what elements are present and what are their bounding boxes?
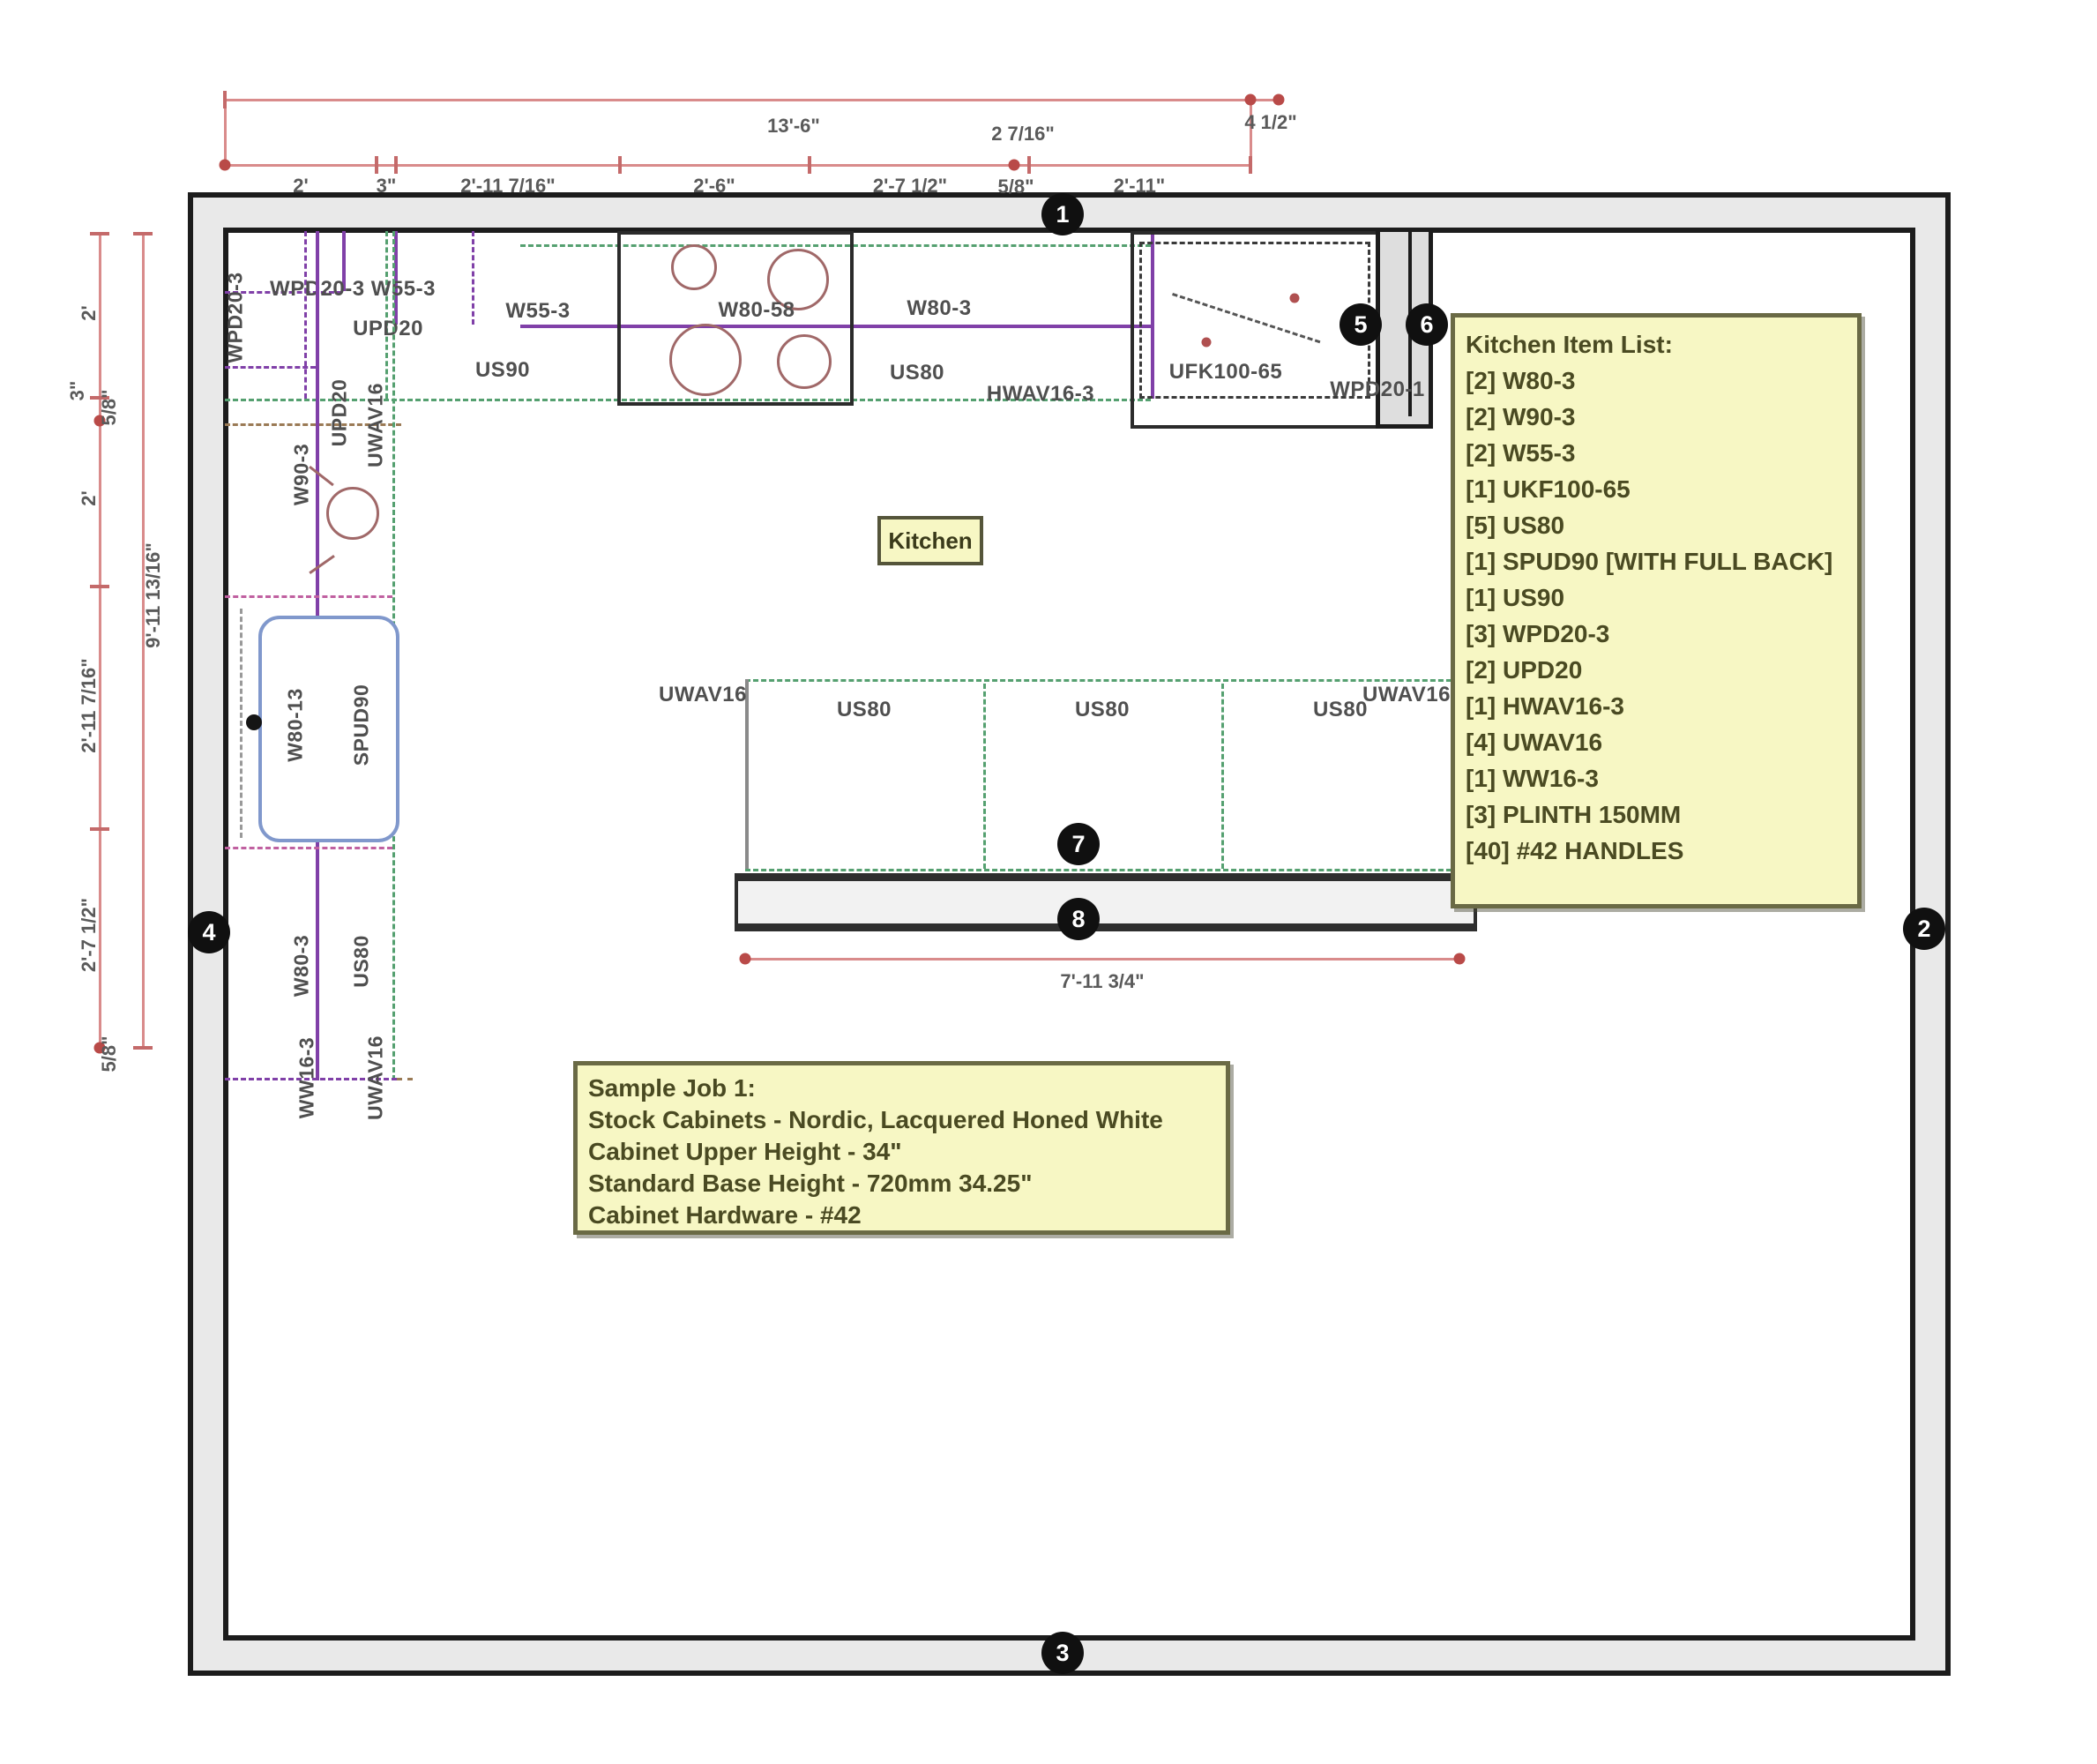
cabinet-label: UWAV16 [1362, 683, 1451, 707]
dim-label: 2' [78, 490, 101, 505]
kitchen-item-list-note[interactable]: Kitchen Item List: [2] W80-3 [2] W90-3 [… [1451, 313, 1862, 908]
cabinet-label: US80 [350, 935, 374, 988]
dim-line [225, 164, 1250, 167]
counter-divider [385, 231, 388, 399]
sample-job-line: Cabinet Upper Height - 34" [588, 1136, 1226, 1168]
sample-job-line: Cabinet Hardware - #42 [588, 1200, 1226, 1231]
sink-marker-dot [246, 714, 262, 730]
dim-label: 2' [293, 175, 308, 198]
dim-label: 2'-11 7/16" [78, 658, 101, 752]
dim-tick [220, 160, 231, 171]
dim-label-extra: 4 1/2" [1244, 111, 1296, 134]
dim-tick [1454, 953, 1466, 965]
cabinet-line [225, 366, 316, 369]
island-countertop [735, 873, 1477, 931]
cabinet-divider [304, 231, 307, 399]
burner-icon [669, 324, 742, 396]
dim-label-total-height: 9'-11 13/16" [142, 542, 165, 648]
sample-job-note[interactable]: Sample Job 1: Stock Cabinets - Nordic, L… [573, 1061, 1230, 1235]
item-list-entry: [1] SPUD90 [WITH FULL BACK] [1466, 543, 1857, 579]
dim-label-above: 2 7/16" [991, 123, 1055, 146]
hinge-dot [1290, 294, 1300, 303]
dim-tick [618, 156, 622, 174]
dim-label: 2'-7 1/2" [78, 898, 101, 972]
cabinet-label: UPD20 [328, 379, 352, 447]
cabinet-label: W55-3 [505, 299, 570, 324]
dim-tick [375, 156, 378, 174]
dim-line [745, 958, 1459, 960]
callout-marker-6[interactable]: 6 [1406, 303, 1448, 346]
dim-label: 2'-11 7/16" [460, 175, 555, 198]
cabinet-label: UWAV16 [364, 383, 388, 467]
dim-label: 2'-11" [1114, 175, 1165, 198]
item-list-entry: [2] UPD20 [1466, 652, 1857, 688]
dim-label: 5/8" [98, 389, 121, 425]
item-list-entry: [3] WPD20-3 [1466, 616, 1857, 652]
dim-line [225, 99, 1279, 101]
island-divider [983, 684, 986, 869]
dim-tick [223, 91, 227, 108]
dim-label: 2' [78, 305, 101, 320]
dim-tick [1009, 160, 1020, 171]
dim-tick [808, 156, 811, 174]
island-back-line [745, 679, 1459, 682]
cabinet-label: US80 [1313, 698, 1368, 722]
dim-tick [90, 585, 109, 588]
cabinet-label: UPD20 [353, 317, 423, 341]
sample-job-line: Sample Job 1: [588, 1073, 1226, 1104]
room-name-label: Kitchen [888, 527, 972, 555]
item-list-entry: [2] W80-3 [1466, 363, 1857, 399]
island-side-line [745, 679, 749, 869]
cabinet-label: HWAV16-3 [987, 382, 1094, 407]
hinge-dot [1202, 338, 1212, 348]
item-list-entry: [1] WW16-3 [1466, 760, 1857, 796]
room-name-tag[interactable]: Kitchen [877, 516, 983, 565]
cabinet-label: W80-13 [284, 688, 308, 762]
cabinet-label: WPD20-1 [1330, 377, 1425, 402]
cabinet-label: W80-58 [718, 298, 795, 323]
dim-tick [1245, 94, 1257, 106]
item-list-entry: [2] W90-3 [1466, 399, 1857, 435]
item-list-entry: [1] HWAV16-3 [1466, 688, 1857, 724]
dim-label-island: 7'-11 3/4" [1060, 970, 1144, 993]
dim-tick [740, 953, 751, 965]
item-list-entry: [5] US80 [1466, 507, 1857, 543]
callout-marker-5[interactable]: 5 [1340, 303, 1382, 346]
cabinet-label: US80 [1075, 698, 1130, 722]
dim-tick [1249, 156, 1252, 174]
cabinet-label: UWAV16 [659, 683, 747, 707]
cabinet-line [225, 847, 392, 849]
cabinet-label: UFK100-65 [1169, 360, 1283, 385]
item-list-entry: [1] US90 [1466, 579, 1857, 616]
burner-icon [777, 334, 832, 389]
item-list-entry: [4] UWAV16 [1466, 724, 1857, 760]
cabinet-label: UWAV16 [364, 1035, 388, 1120]
item-list-entry: [40] #42 HANDLES [1466, 833, 1857, 869]
cabinet-label: SPUD90 [350, 684, 374, 766]
dim-tick [133, 232, 153, 235]
island-front-line [745, 869, 1459, 871]
item-list-entry: [2] W55-3 [1466, 435, 1857, 471]
dim-label-total-width: 13'-6" [767, 115, 820, 138]
cabinet-label: WW16-3 [295, 1037, 319, 1118]
dim-tick [1027, 156, 1031, 174]
cabinet-divider [472, 231, 474, 325]
dim-tick [90, 827, 109, 831]
cabinet-label: US80 [837, 698, 892, 722]
dim-label: 3" [377, 175, 397, 198]
dim-label: 2'-7 1/2" [873, 175, 947, 198]
cabinet-label: WPD20-3 [224, 272, 248, 363]
wall-marker-2[interactable]: 2 [1903, 908, 1945, 950]
cabinet-label: WPD20-3 W55-3 [270, 277, 436, 302]
wall-marker-3[interactable]: 3 [1041, 1632, 1084, 1674]
item-list-title: Kitchen Item List: [1466, 326, 1857, 363]
island-marker-7[interactable]: 7 [1057, 823, 1100, 865]
dim-tick [133, 1046, 153, 1050]
item-list-entry: [3] PLINTH 150MM [1466, 796, 1857, 833]
kitchen-floor-plan: 13'-6" 4 1/2" 2' 3" 2'-11 7/16" 2'-6" 2'… [0, 0, 2097, 1764]
dim-tick [1273, 94, 1285, 106]
cabinet-label: W80-3 [907, 296, 971, 321]
dim-tick [394, 156, 398, 174]
dim-label: 2'-6" [693, 175, 735, 198]
sink-outline [258, 616, 399, 842]
faucet-icon [326, 487, 379, 540]
cabinet-line [240, 609, 243, 838]
wall-marker-1[interactable]: 1 [1041, 193, 1084, 235]
cabinet-line [225, 595, 392, 598]
sample-job-line: Stock Cabinets - Nordic, Lacquered Honed… [588, 1104, 1226, 1136]
island-marker-8[interactable]: 8 [1057, 898, 1100, 940]
cabinet-label: US80 [890, 361, 944, 385]
burner-icon [671, 244, 717, 290]
cabinet-label: W80-3 [290, 935, 314, 997]
island-divider [1221, 684, 1224, 869]
dim-label: 3" [66, 381, 89, 401]
dim-tick [90, 232, 109, 235]
dim-label: 5/8" [997, 176, 1034, 198]
plinth-line [397, 1078, 413, 1080]
wall-marker-4[interactable]: 4 [188, 911, 230, 953]
cabinet-label: US90 [475, 358, 530, 383]
dim-label: 5/8" [98, 1035, 121, 1072]
cabinet-label: W90-3 [290, 444, 314, 505]
sample-job-line: Standard Base Height - 720mm 34.25" [588, 1168, 1226, 1200]
item-list-entry: [1] UKF100-65 [1466, 471, 1857, 507]
